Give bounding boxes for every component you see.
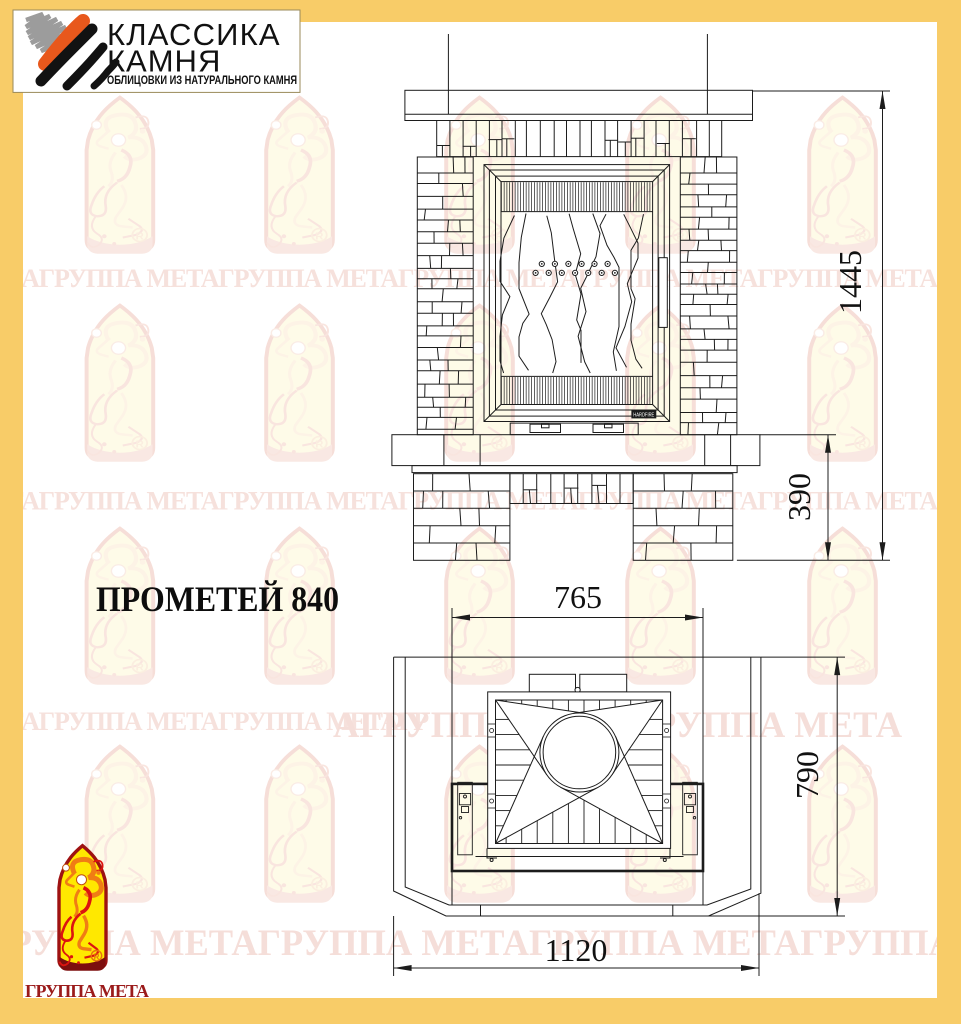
svg-text:HARDFIRE: HARDFIRE xyxy=(633,412,655,418)
svg-text:765: 765 xyxy=(554,579,602,615)
svg-text:1120: 1120 xyxy=(545,932,608,968)
svg-text:390: 390 xyxy=(781,473,817,521)
svg-text:ПРОМЕТЕЙ 840: ПРОМЕТЕЙ 840 xyxy=(96,579,339,619)
svg-text:1445: 1445 xyxy=(832,250,868,314)
svg-text:ГРУППА МЕТА: ГРУППА МЕТА xyxy=(25,981,149,1001)
svg-text:790: 790 xyxy=(789,751,825,799)
svg-text:ОБЛИЦОВКИ ИЗ НАТУРАЛЬНОГО КАМН: ОБЛИЦОВКИ ИЗ НАТУРАЛЬНОГО КАМНЯ xyxy=(107,73,297,87)
svg-text:ГРУППА МЕТАГРУППА МЕТАГРУППА М: ГРУППА МЕТАГРУППА МЕТАГРУППА МЕТАГРУППА … xyxy=(0,922,961,963)
